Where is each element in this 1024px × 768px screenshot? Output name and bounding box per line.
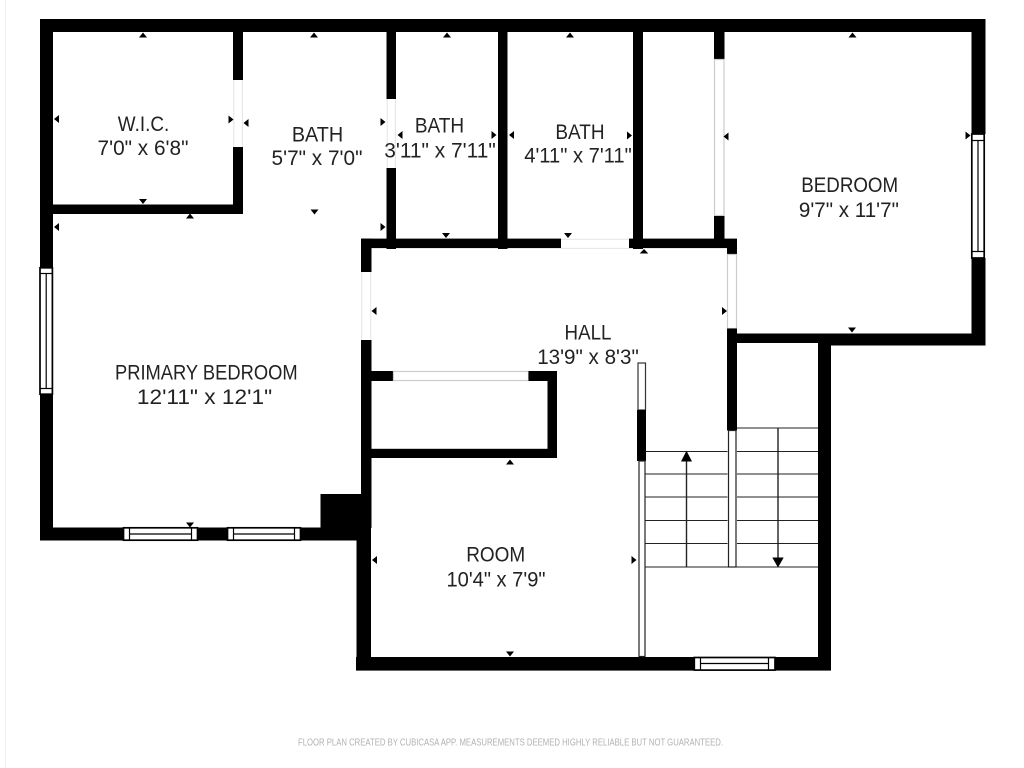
svg-text:4'11" x 7'11": 4'11" x 7'11": [524, 143, 632, 167]
svg-text:HALL: HALL: [565, 320, 612, 344]
svg-text:FLOOR PLAN CREATED BY CUBICASA: FLOOR PLAN CREATED BY CUBICASA APP. MEAS…: [298, 738, 723, 749]
svg-text:BEDROOM: BEDROOM: [801, 173, 898, 197]
svg-text:W.I.C.: W.I.C.: [118, 112, 169, 136]
svg-text:ROOM: ROOM: [466, 542, 525, 566]
svg-text:3'11" x 7'11": 3'11" x 7'11": [384, 138, 496, 162]
svg-text:12'11" x 12'1": 12'11" x 12'1": [137, 385, 272, 409]
svg-text:BATH: BATH: [292, 122, 343, 146]
svg-text:10'4" x 7'9": 10'4" x 7'9": [447, 567, 546, 591]
svg-text:9'7" x 11'7": 9'7" x 11'7": [799, 198, 899, 222]
svg-text:PRIMARY BEDROOM: PRIMARY BEDROOM: [115, 360, 298, 384]
svg-text:BATH: BATH: [555, 120, 604, 144]
svg-text:7'0" x 6'8": 7'0" x 6'8": [98, 136, 189, 160]
svg-text:BATH: BATH: [415, 113, 464, 137]
svg-text:13'9" x 8'3": 13'9" x 8'3": [537, 345, 639, 369]
svg-text:5'7" x 7'0": 5'7" x 7'0": [272, 146, 363, 170]
